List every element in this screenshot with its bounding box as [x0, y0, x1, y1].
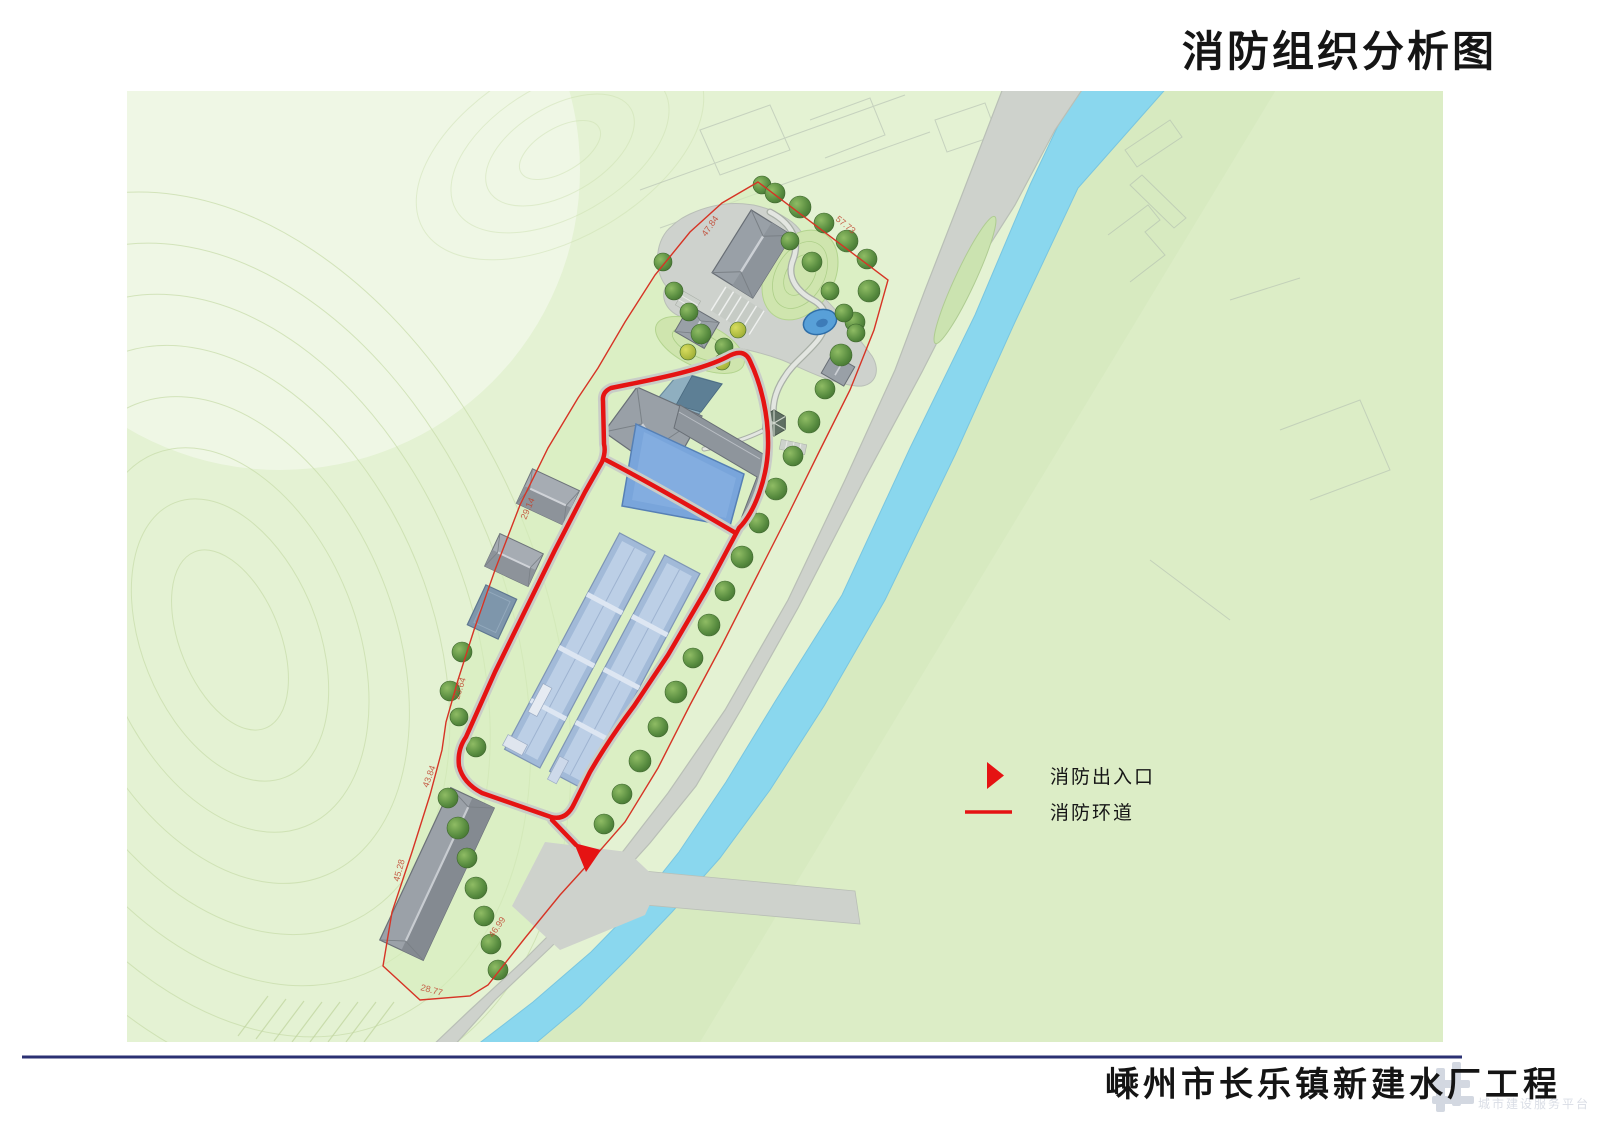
page-title: 消防组织分析图: [1182, 28, 1497, 75]
legend-entrance-label: 消防出入口: [1050, 766, 1155, 788]
site-plan-svg: 消防组织分析图: [0, 0, 1600, 1131]
project-title: 嵊州市长乐镇新建水厂工程: [1105, 1065, 1561, 1104]
legend-loop-label: 消防环道: [1050, 802, 1134, 824]
plan-area: 57.73 47.84 29.14 23.64 43.84 45.28 28.7…: [0, 0, 1600, 1131]
